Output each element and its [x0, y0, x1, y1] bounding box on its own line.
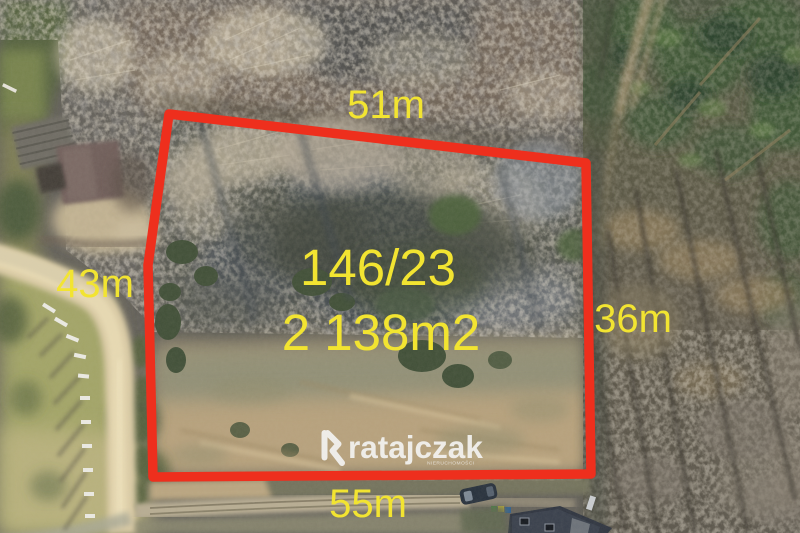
svg-text:2 138m2: 2 138m2 [282, 304, 480, 361]
svg-text:146/23: 146/23 [300, 239, 456, 296]
svg-text:51m: 51m [347, 83, 425, 127]
svg-text:ratajczak: ratajczak [348, 429, 483, 465]
svg-text:43m: 43m [56, 262, 134, 306]
svg-text:55m: 55m [329, 482, 407, 526]
svg-text:36m: 36m [594, 297, 672, 341]
